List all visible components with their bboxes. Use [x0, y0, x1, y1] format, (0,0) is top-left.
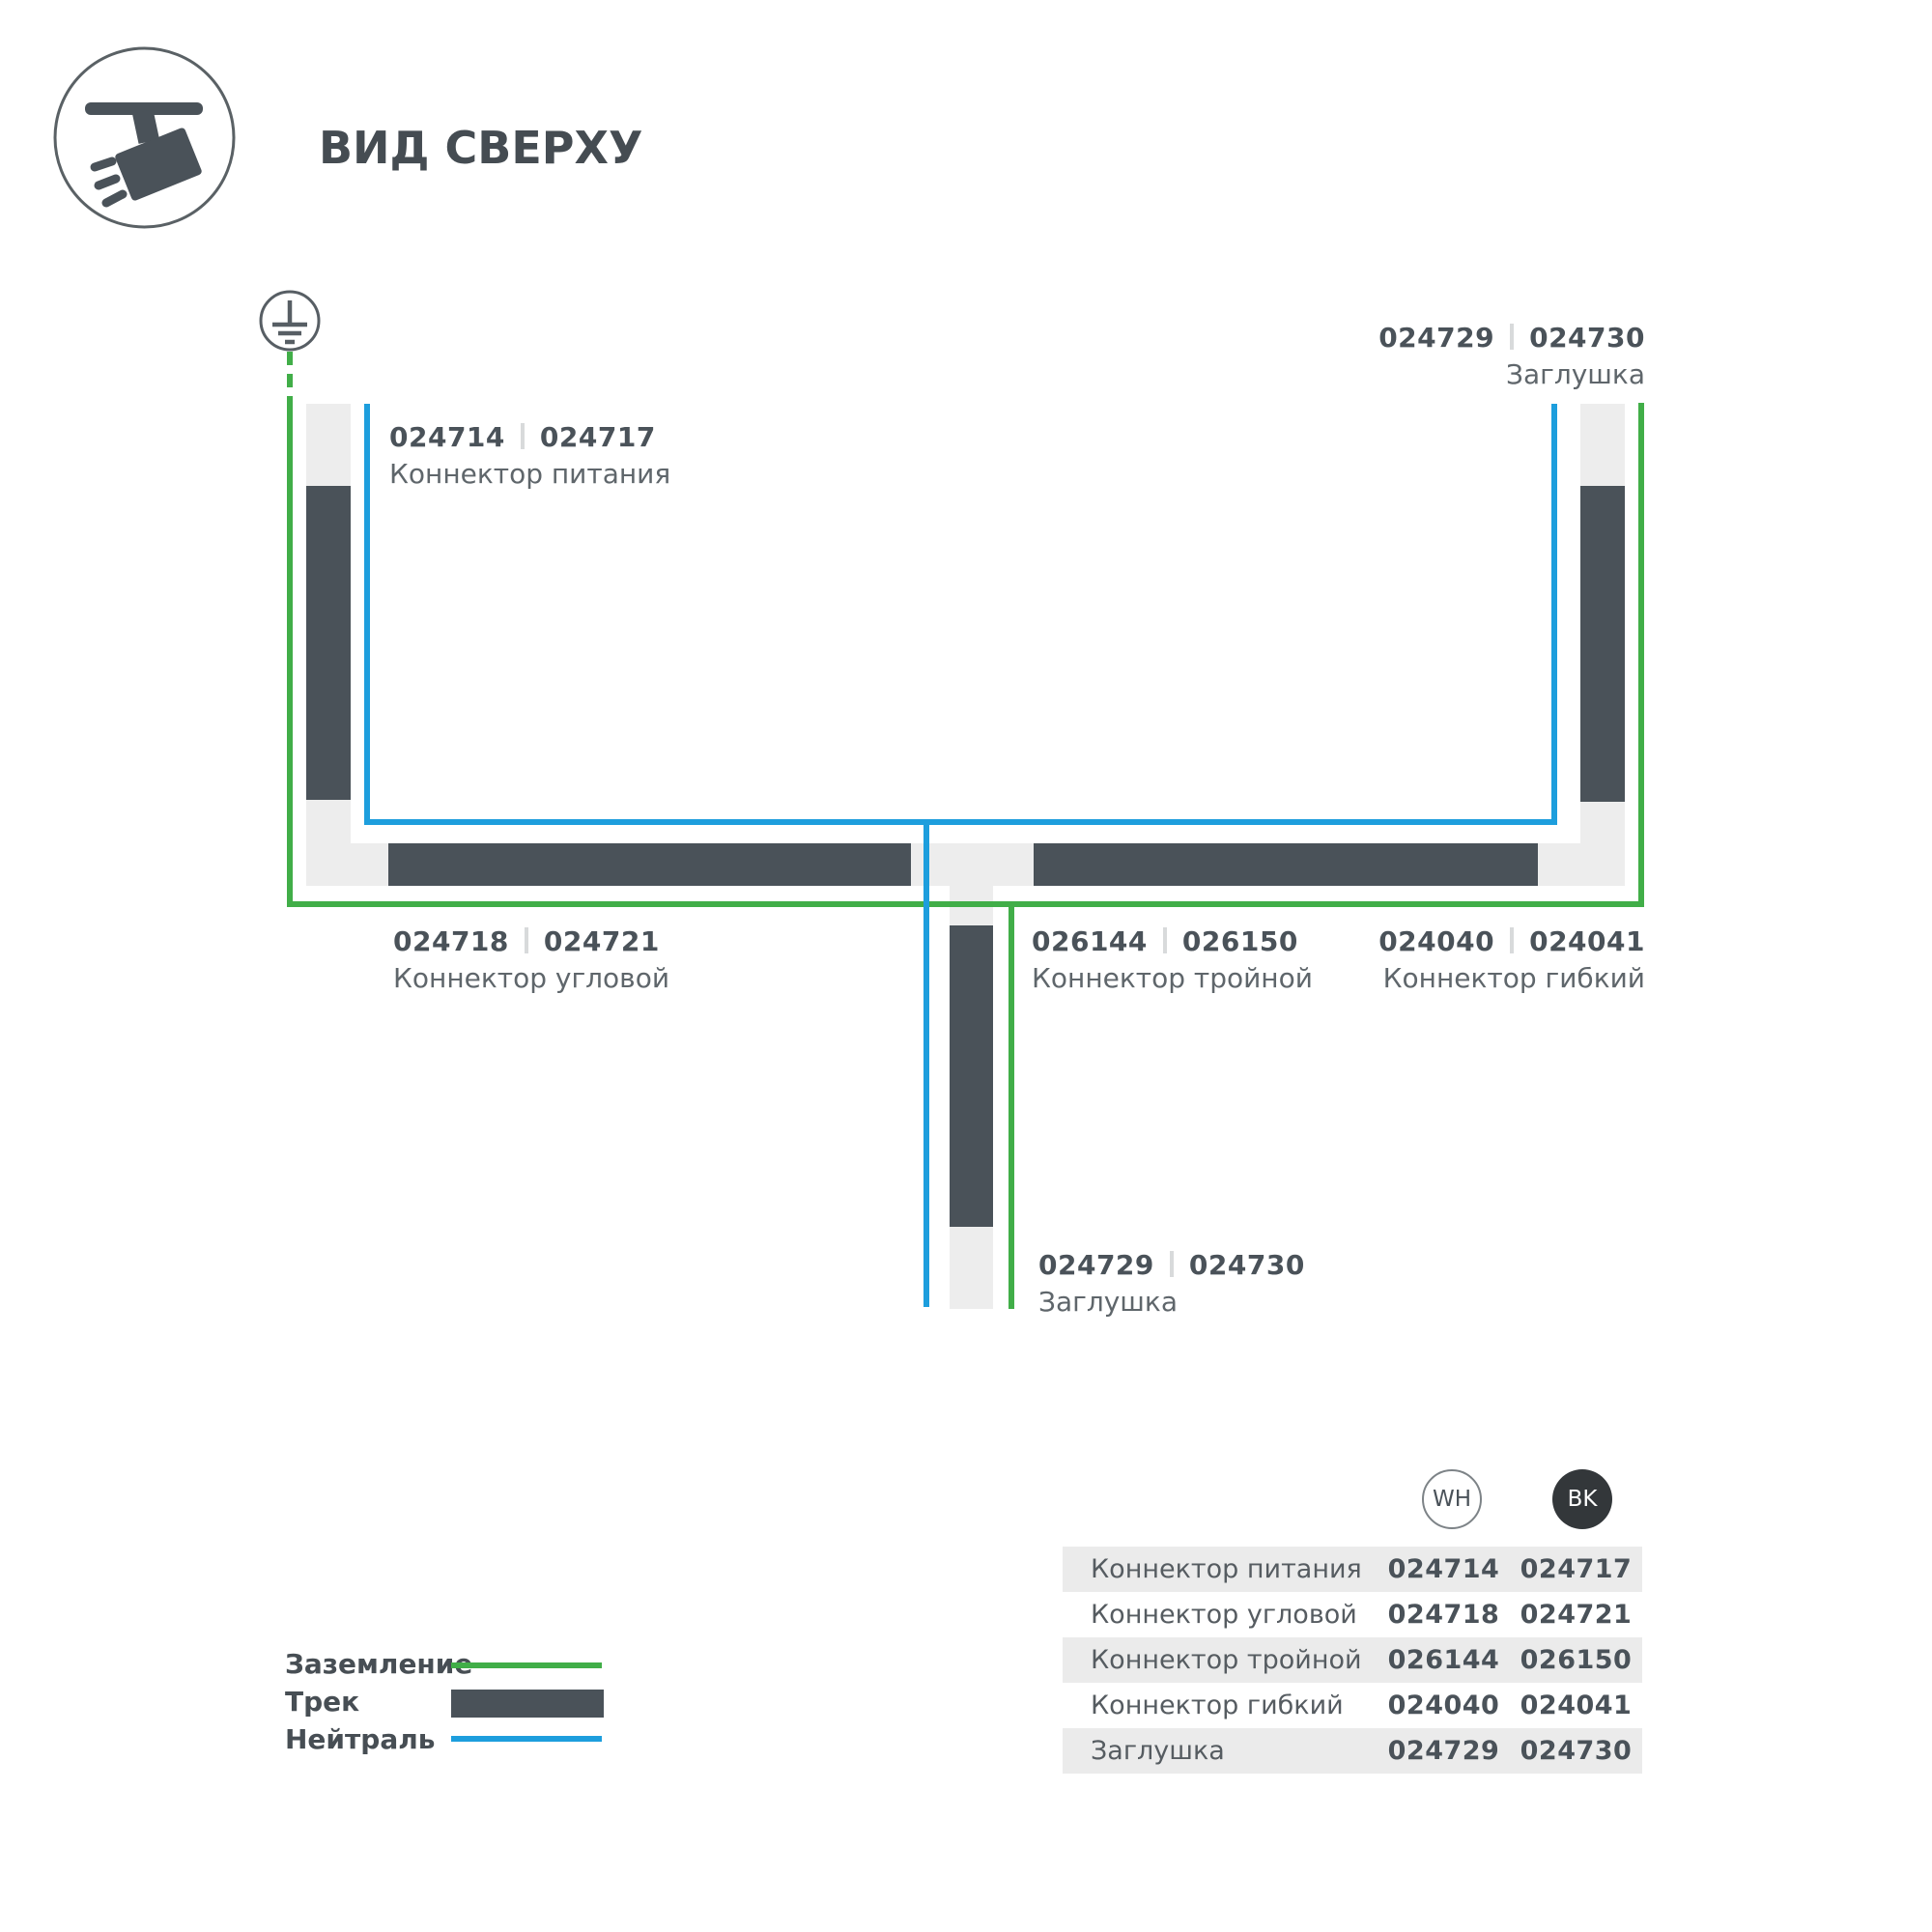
track-bar-left: [306, 486, 351, 800]
legend-label-ground: Заземление: [285, 1648, 472, 1680]
code-wh: 024729: [1378, 322, 1494, 354]
label-power-connector: 024714024717 Коннектор питания: [389, 421, 670, 490]
code-divider-icon: [1510, 927, 1514, 953]
part-name: Коннектор угловой: [1063, 1600, 1378, 1630]
part-name: Коннектор питания: [1063, 1554, 1378, 1584]
part-code-bk: 024041: [1510, 1690, 1642, 1720]
part-code-wh: 024714: [1378, 1554, 1510, 1584]
code-divider-icon: [1510, 324, 1514, 350]
track-bar-horizontal-right: [1034, 843, 1538, 886]
parts-table: Коннектор питания 024714 024717 Коннекто…: [1063, 1547, 1642, 1774]
code-bk: 026150: [1182, 925, 1298, 957]
label-cap-top-codes: 024729024730: [1378, 322, 1645, 358]
code-wh: 024040: [1378, 925, 1494, 957]
track-bar-stem: [950, 925, 993, 1227]
code-divider-icon: [1163, 927, 1167, 953]
legend-ground-line-swatch: [451, 1662, 602, 1668]
label-triple-connector: 026144026150 Коннектор тройной: [1032, 925, 1313, 994]
track-light-icon: [50, 43, 239, 232]
legend-track-bar-swatch: [451, 1690, 604, 1718]
ground-symbol-icon: [261, 292, 319, 350]
track-bar-right: [1580, 486, 1625, 802]
color-badge-wh: WH: [1422, 1469, 1482, 1529]
legend-neutral-line-swatch: [451, 1736, 602, 1742]
table-row: Заглушка 024729 024730: [1063, 1728, 1642, 1774]
label-triple-name: Коннектор тройной: [1032, 962, 1313, 994]
code-bk: 024717: [540, 421, 656, 453]
track-bar-horizontal-left: [388, 843, 911, 886]
label-flex-codes: 024040024041: [1378, 925, 1645, 962]
page-title: ВИД СВЕРХУ: [319, 122, 642, 174]
part-name: Коннектор тройной: [1063, 1645, 1378, 1675]
code-wh: 026144: [1032, 925, 1148, 957]
code-bk: 024730: [1529, 322, 1645, 354]
code-wh: 024718: [393, 925, 509, 957]
label-corner-codes: 024718024721: [393, 925, 669, 962]
color-badge-bk: BK: [1552, 1469, 1612, 1529]
part-code-wh: 024040: [1378, 1690, 1510, 1720]
label-cap-top-name: Заглушка: [1378, 358, 1645, 390]
label-end-cap-top: 024729024730 Заглушка: [1378, 322, 1645, 390]
label-cap-bottom-name: Заглушка: [1038, 1286, 1305, 1318]
top-view-diagram-page: ВИД СВЕРХУ 024714024717 Коннектор: [0, 0, 1932, 1932]
code-divider-icon: [521, 423, 525, 449]
part-code-wh: 024718: [1378, 1600, 1510, 1630]
part-code-bk: 024730: [1510, 1736, 1642, 1766]
part-name: Заглушка: [1063, 1736, 1378, 1766]
part-code-bk: 024721: [1510, 1600, 1642, 1630]
code-wh: 024714: [389, 421, 505, 453]
label-end-cap-bottom: 024729024730 Заглушка: [1038, 1249, 1305, 1318]
label-power-name: Коннектор питания: [389, 458, 670, 490]
table-row: Коннектор тройной 026144 026150: [1063, 1637, 1642, 1683]
label-corner-name: Коннектор угловой: [393, 962, 669, 994]
label-triple-codes: 026144026150: [1032, 925, 1313, 962]
code-divider-icon: [525, 927, 528, 953]
legend-label-track: Трек: [285, 1686, 359, 1718]
part-name: Коннектор гибкий: [1063, 1690, 1378, 1720]
label-corner-connector: 024718024721 Коннектор угловой: [393, 925, 669, 994]
part-code-bk: 024717: [1510, 1554, 1642, 1584]
code-bk: 024730: [1189, 1249, 1305, 1281]
table-row: Коннектор угловой 024718 024721: [1063, 1592, 1642, 1637]
code-bk: 024721: [544, 925, 660, 957]
label-power-codes: 024714024717: [389, 421, 670, 458]
code-divider-icon: [1170, 1251, 1174, 1277]
label-flex-connector: 024040024041 Коннектор гибкий: [1378, 925, 1645, 994]
table-row: Коннектор питания 024714 024717: [1063, 1547, 1642, 1592]
code-wh: 024729: [1038, 1249, 1154, 1281]
table-row: Коннектор гибкий 024040 024041: [1063, 1683, 1642, 1728]
part-code-wh: 024729: [1378, 1736, 1510, 1766]
label-flex-name: Коннектор гибкий: [1378, 962, 1645, 994]
label-cap-bottom-codes: 024729024730: [1038, 1249, 1305, 1286]
part-code-wh: 026144: [1378, 1645, 1510, 1675]
part-code-bk: 026150: [1510, 1645, 1642, 1675]
code-bk: 024041: [1529, 925, 1645, 957]
legend-label-neutral: Нейтраль: [285, 1723, 435, 1755]
